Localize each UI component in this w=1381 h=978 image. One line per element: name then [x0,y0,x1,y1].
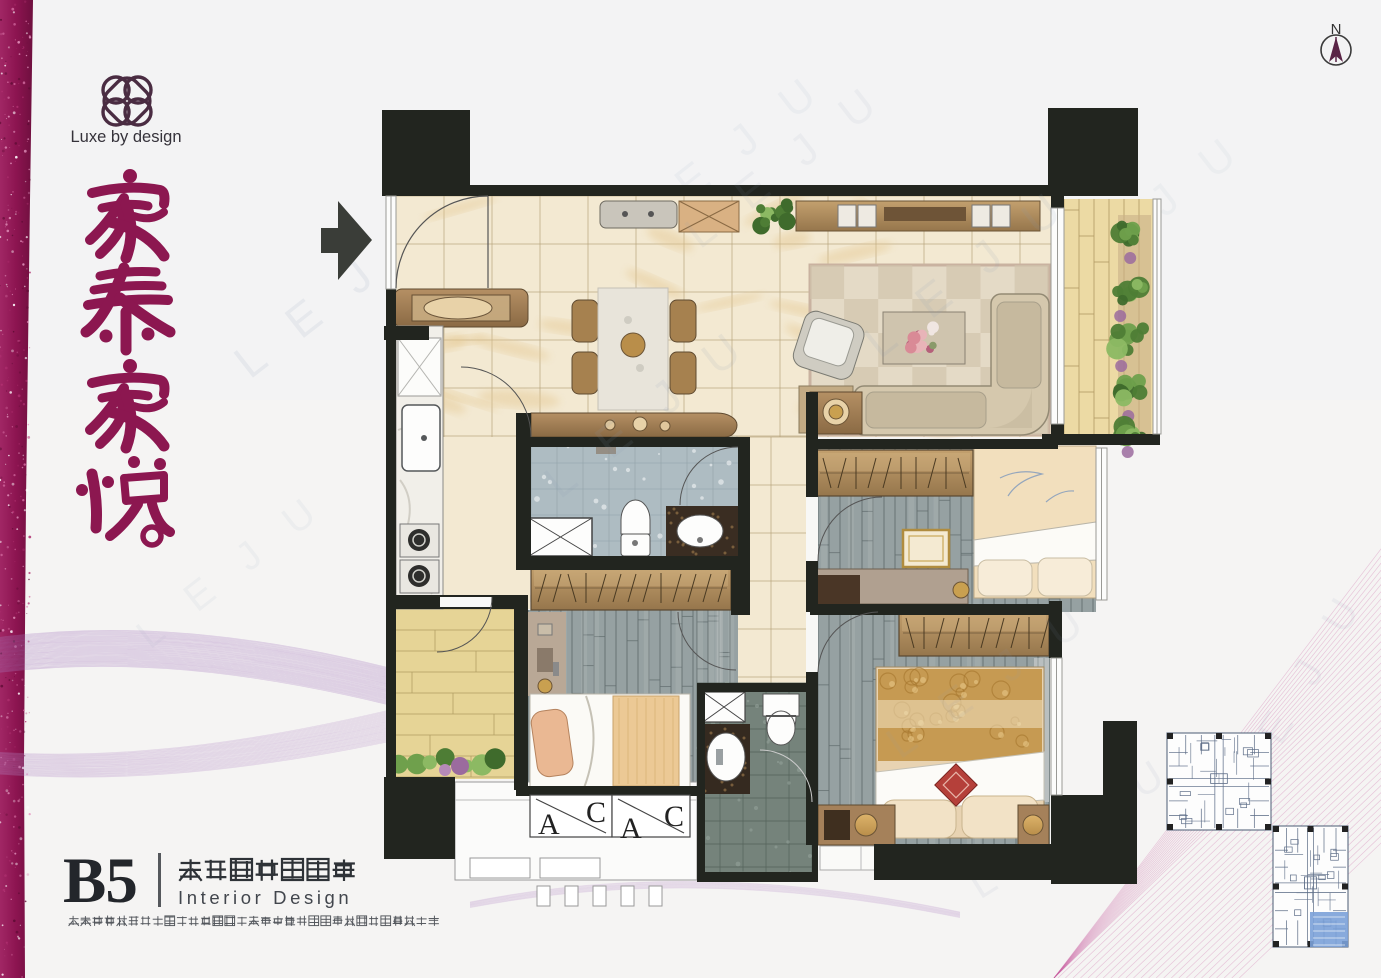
svg-text:C: C [586,796,606,829]
svg-text:N: N [1331,21,1342,38]
svg-text:Luxe by design: Luxe by design [71,128,182,146]
svg-text:Interior Design: Interior Design [178,887,352,908]
svg-text:A: A [620,812,642,845]
svg-text:C: C [664,800,684,833]
svg-text:B5: B5 [63,845,137,917]
svg-text:A: A [538,808,560,841]
